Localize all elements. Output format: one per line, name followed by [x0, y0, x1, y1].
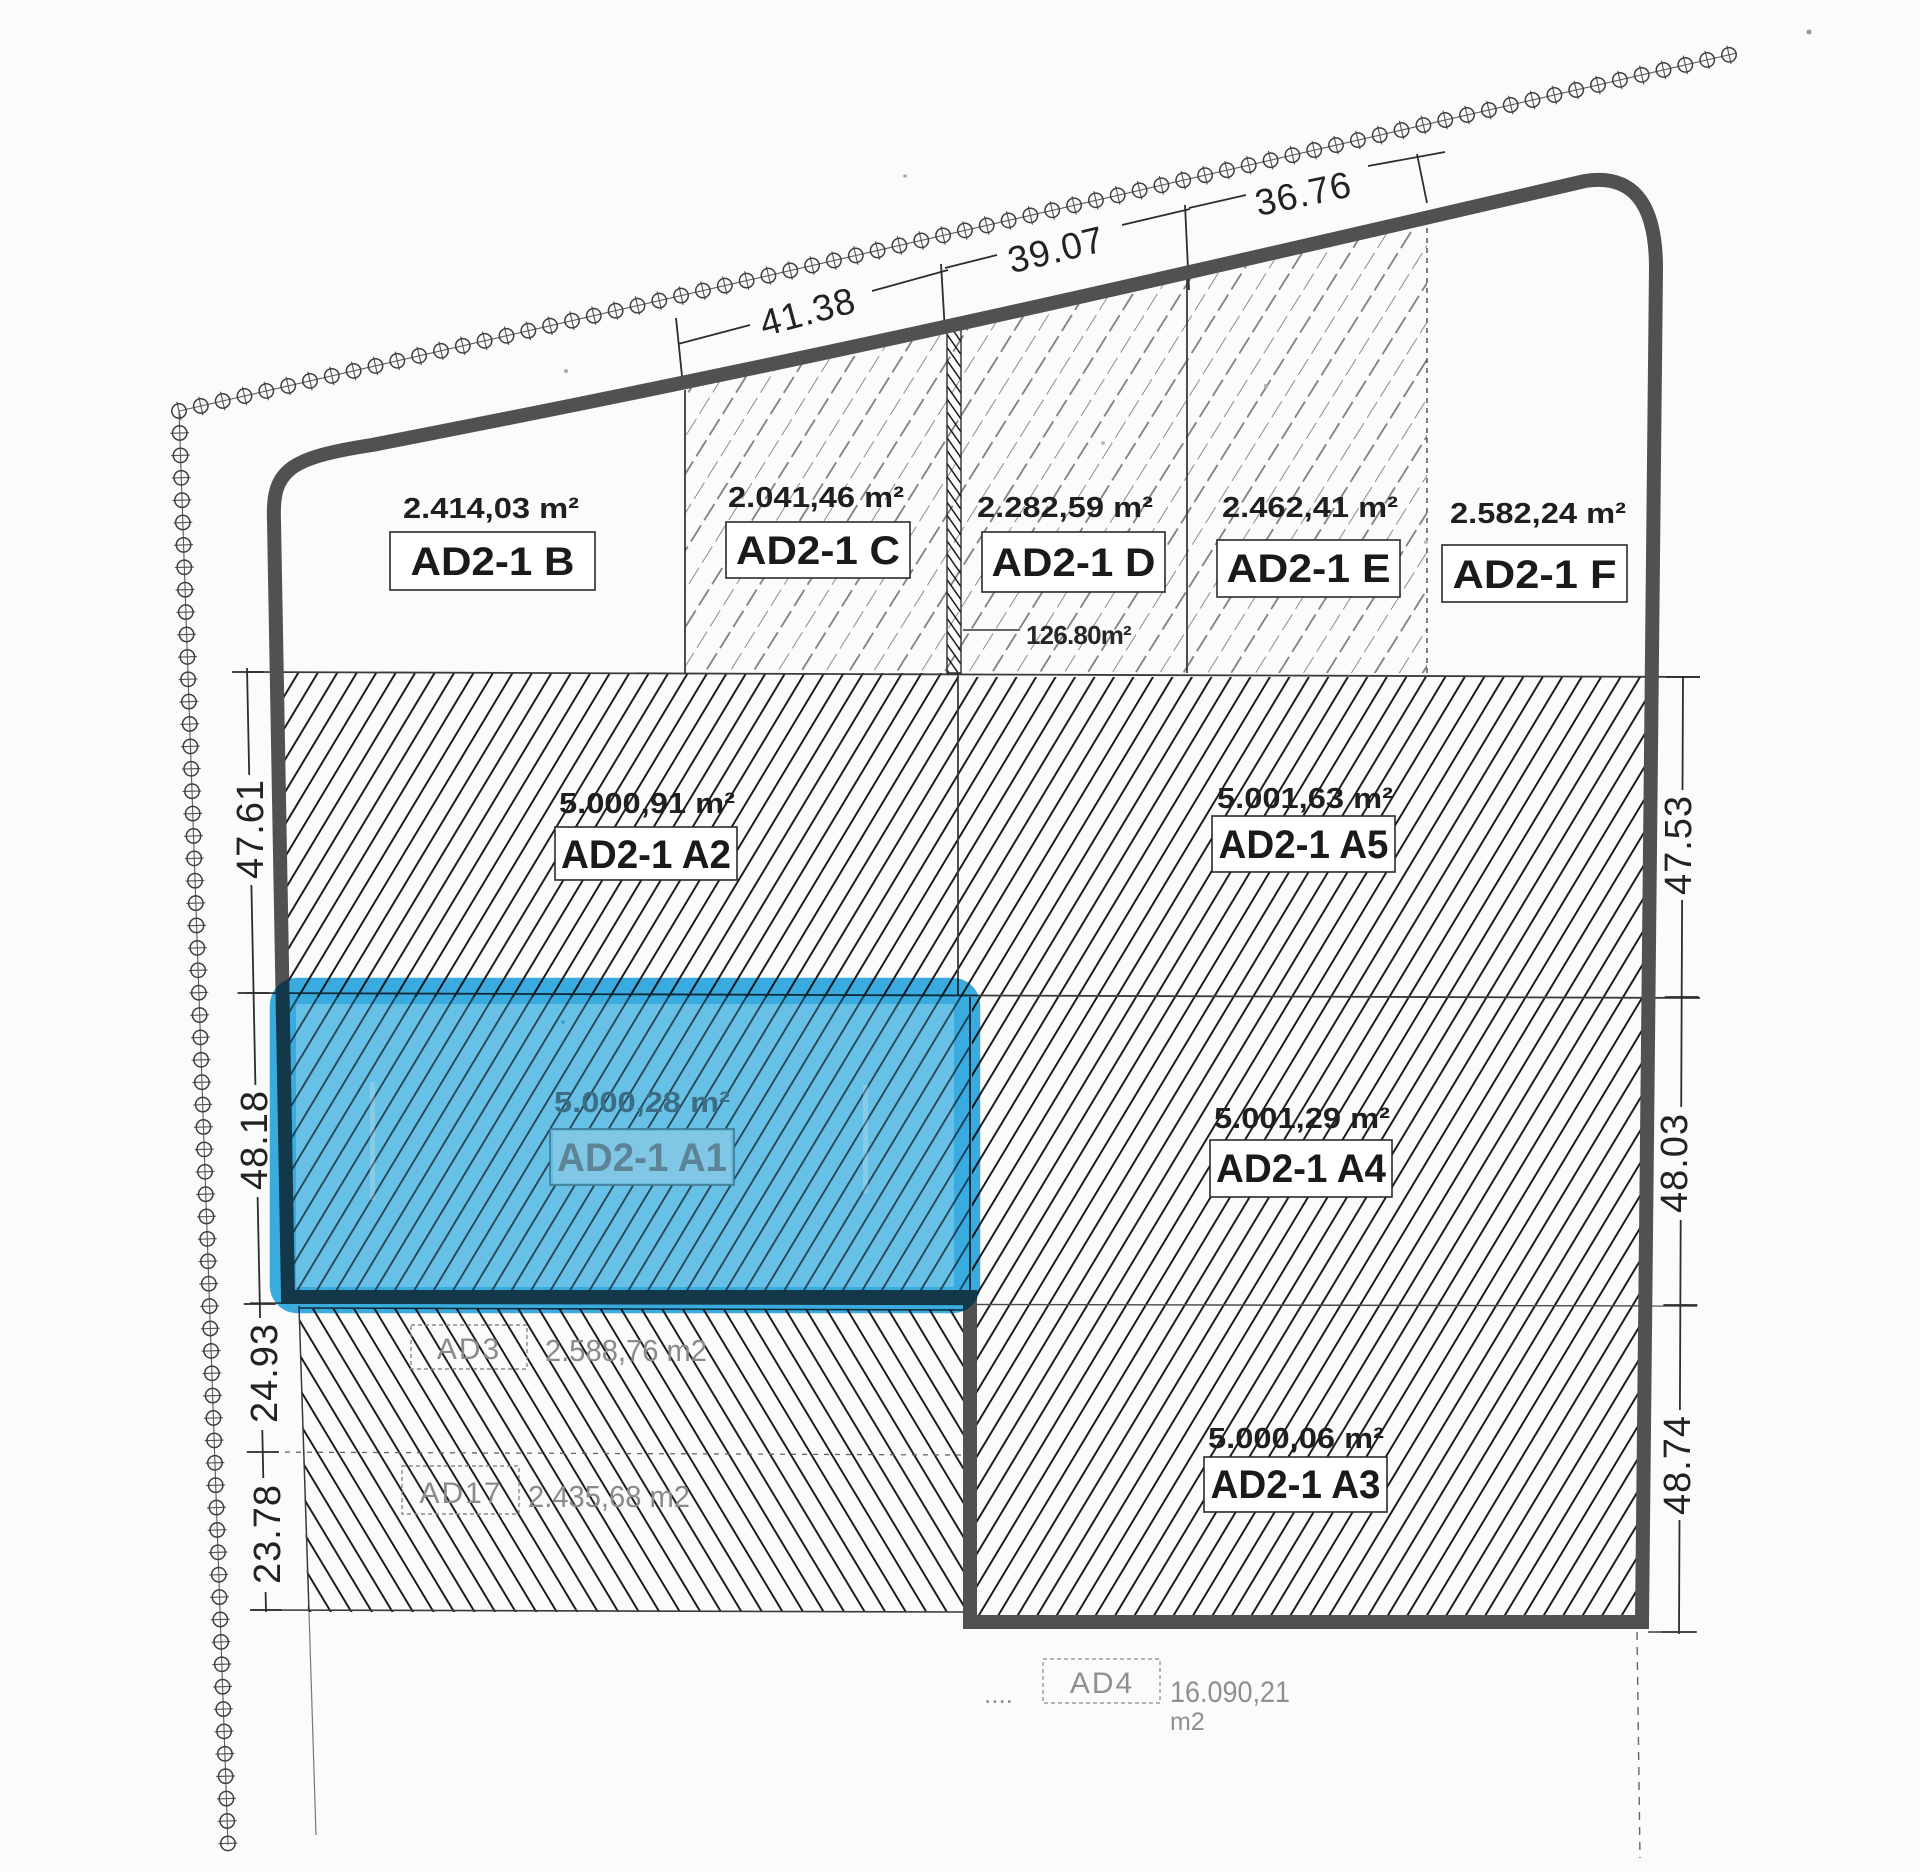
svg-text:AD2-1 A2: AD2-1 A2 [561, 833, 731, 877]
svg-text:AD2-1 B: AD2-1 B [411, 540, 575, 584]
svg-text:47.53: 47.53 [1658, 795, 1700, 895]
svg-text:5.000,06 m²: 5.000,06 m² [1208, 1423, 1384, 1455]
svg-text:2.414,03 m²: 2.414,03 m² [403, 493, 579, 525]
svg-text:2.041,46 m²: 2.041,46 m² [728, 482, 904, 514]
svg-text:AD2-1 E: AD2-1 E [1227, 547, 1391, 591]
svg-text:2.582,24 m²: 2.582,24 m² [1450, 498, 1626, 530]
svg-text:23.78: 23.78 [247, 1484, 289, 1584]
svg-text:....: .... [984, 1679, 1013, 1709]
svg-text:5.000,91 m²: 5.000,91 m² [559, 788, 735, 820]
svg-text:AD17: AD17 [419, 1477, 502, 1510]
svg-text:2.588,76 m2: 2.588,76 m2 [545, 1333, 707, 1368]
svg-text:126.80m²: 126.80m² [1026, 620, 1132, 650]
svg-text:AD4: AD4 [1070, 1667, 1134, 1700]
svg-text:5.001,29 m²: 5.001,29 m² [1214, 1103, 1390, 1135]
svg-text:AD2-1 C: AD2-1 C [736, 529, 900, 573]
svg-text:47.61: 47.61 [230, 779, 272, 879]
svg-text:AD2-1 A4: AD2-1 A4 [1216, 1147, 1387, 1191]
svg-text:AD2-1 F: AD2-1 F [1453, 553, 1617, 597]
svg-text:AD2-1 D: AD2-1 D [992, 541, 1156, 585]
svg-text:2.282,59 m²: 2.282,59 m² [977, 492, 1153, 524]
svg-text:48.74: 48.74 [1657, 1415, 1699, 1515]
svg-text:16.090,21: 16.090,21 [1170, 1676, 1290, 1709]
svg-text:m2: m2 [1170, 1708, 1205, 1736]
svg-text:2.435,68 m2: 2.435,68 m2 [528, 1479, 690, 1514]
svg-text:24.93: 24.93 [244, 1323, 286, 1423]
svg-text:48.03: 48.03 [1654, 1113, 1696, 1213]
svg-text:2.462,41 m²: 2.462,41 m² [1222, 492, 1398, 524]
svg-text:5.001,63 m²: 5.001,63 m² [1217, 783, 1393, 815]
svg-text:AD2-1 A3: AD2-1 A3 [1211, 1463, 1381, 1507]
svg-text:AD2-1 A5: AD2-1 A5 [1219, 823, 1389, 867]
svg-text:AD3: AD3 [437, 1333, 501, 1366]
